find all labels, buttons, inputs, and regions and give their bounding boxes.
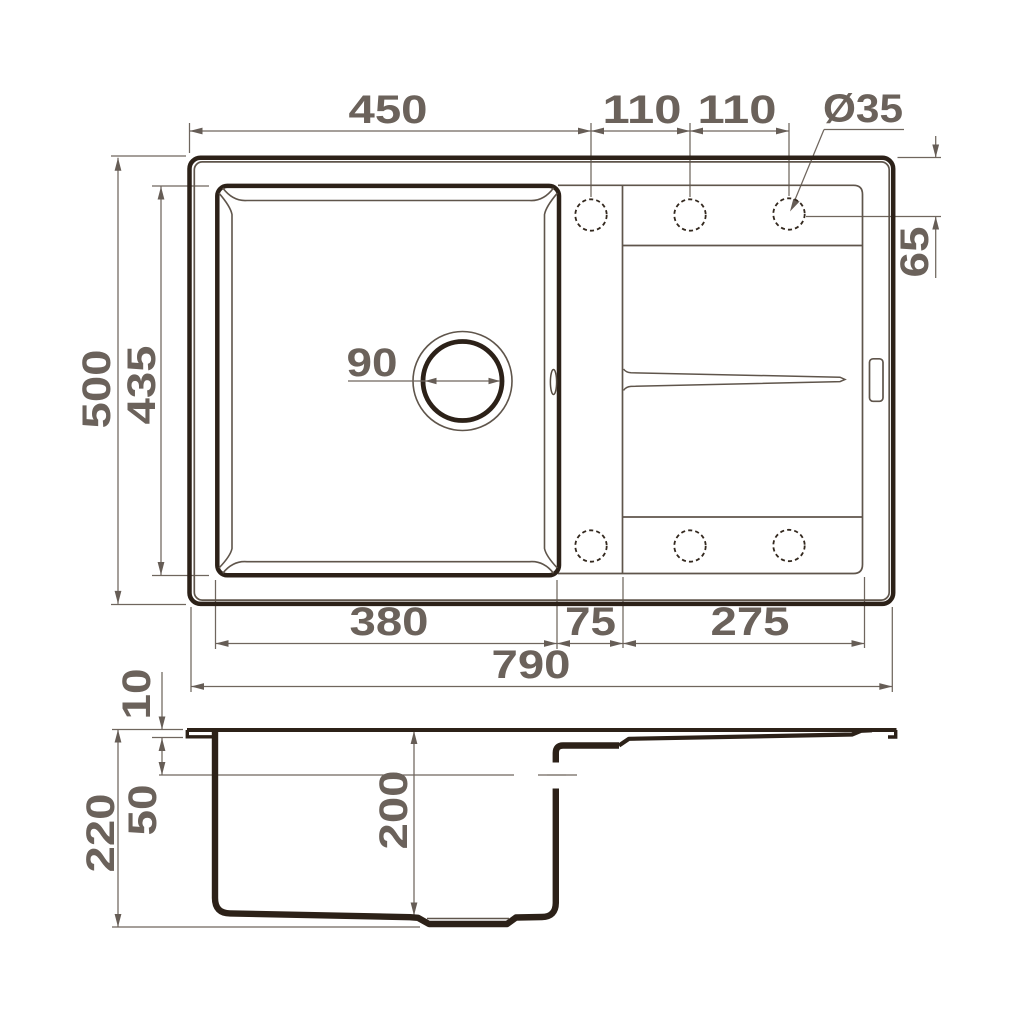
svg-text:65: 65 <box>893 227 937 278</box>
svg-text:500: 500 <box>75 350 119 429</box>
svg-text:275: 275 <box>711 600 790 644</box>
svg-text:380: 380 <box>350 600 429 644</box>
svg-text:Ø35: Ø35 <box>823 87 903 131</box>
svg-text:110: 110 <box>698 88 777 132</box>
svg-text:90: 90 <box>347 341 398 385</box>
svg-text:450: 450 <box>349 88 428 132</box>
svg-text:200: 200 <box>372 771 416 850</box>
svg-text:110: 110 <box>603 88 682 132</box>
svg-text:220: 220 <box>79 794 123 873</box>
svg-text:50: 50 <box>121 785 165 836</box>
svg-text:790: 790 <box>492 643 571 687</box>
svg-text:435: 435 <box>120 346 164 425</box>
svg-text:10: 10 <box>115 669 159 720</box>
svg-text:75: 75 <box>565 600 616 644</box>
